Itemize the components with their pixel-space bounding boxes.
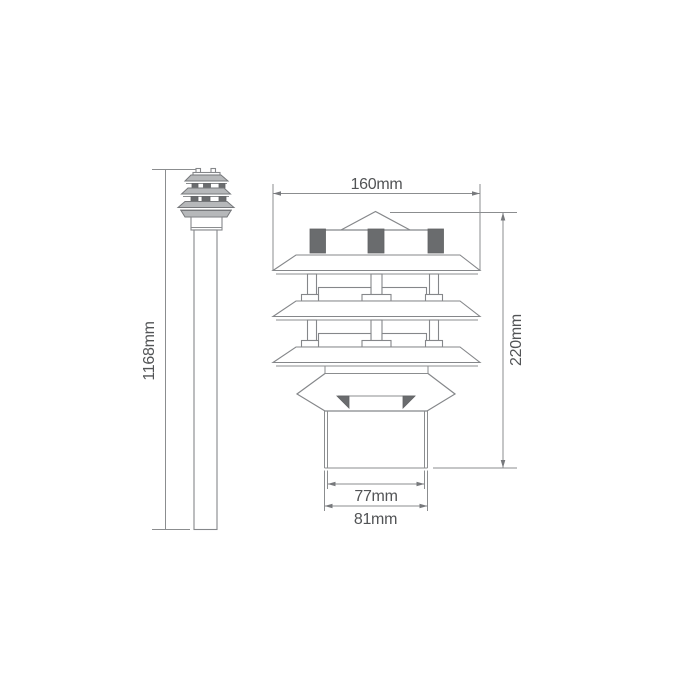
tier-louver — [185, 175, 228, 181]
body-shadow-wedge — [337, 396, 349, 408]
dimension-label-post-height: 1168mm — [141, 321, 158, 380]
body-flare-right — [427, 374, 455, 412]
arrowhead-right — [472, 191, 480, 196]
head-cap — [310, 212, 444, 254]
post-foot — [426, 341, 443, 348]
tier-3-louver — [273, 347, 480, 363]
tier-gap-block — [191, 197, 198, 202]
post-lantern-head — [178, 169, 234, 231]
tier-gap-block — [202, 197, 210, 202]
post-pole — [194, 230, 217, 530]
louver-post — [430, 320, 439, 341]
arrowhead-left — [328, 482, 336, 487]
tier-1-louver — [273, 255, 480, 271]
arrowhead-down — [501, 460, 506, 468]
louver-post — [371, 320, 382, 341]
arrowhead-left — [273, 191, 281, 196]
tier-louver — [178, 202, 234, 208]
louver-post — [308, 274, 317, 295]
lantern-body — [297, 366, 455, 411]
tier-louver — [182, 188, 231, 194]
head-detail-view: 160mm 220mm — [273, 176, 525, 528]
arrowhead-left — [325, 504, 333, 509]
cap-roof — [341, 212, 410, 231]
head-base-bowl — [181, 211, 231, 218]
tier-gap-block — [192, 184, 198, 189]
base-inner-width-dimension: 77mm — [328, 471, 425, 506]
arrowhead-right — [420, 504, 428, 509]
post-foot — [362, 341, 391, 348]
louver-post — [430, 274, 439, 295]
tier-gap-block — [219, 184, 225, 189]
diagram-svg: 1168mm — [0, 0, 700, 700]
post-foot — [426, 295, 443, 302]
base-tube — [325, 411, 428, 468]
inter-tier-section-1 — [302, 274, 443, 301]
louver-post — [371, 274, 382, 295]
dimension-diagram: 1168mm — [0, 0, 700, 700]
louver-post — [308, 320, 317, 341]
body-shadow-wedge — [403, 396, 415, 408]
post-height-dimension: 1168mm — [141, 170, 196, 530]
tier-2-louver — [273, 301, 480, 317]
post-elevation-view: 1168mm — [141, 169, 234, 530]
cap-post — [428, 229, 444, 253]
post-foot — [302, 295, 319, 302]
cap-post — [310, 229, 326, 253]
post-foot — [362, 295, 391, 302]
dimension-label-head-height: 220mm — [508, 314, 525, 366]
arrowhead-right — [417, 482, 425, 487]
cap-post — [368, 229, 384, 253]
inter-tier-section-2 — [302, 320, 443, 347]
body-flare-left — [297, 374, 325, 412]
dimension-label-base-inner: 77mm — [354, 488, 397, 505]
arrowhead-up — [501, 213, 506, 221]
post-foot — [302, 341, 319, 348]
dimension-label-head-width: 160mm — [351, 176, 403, 193]
tier-gap-block — [204, 184, 211, 189]
head-collar — [191, 217, 222, 230]
dimension-label-base-outer: 81mm — [354, 511, 397, 528]
tier-gap-block — [219, 197, 226, 202]
